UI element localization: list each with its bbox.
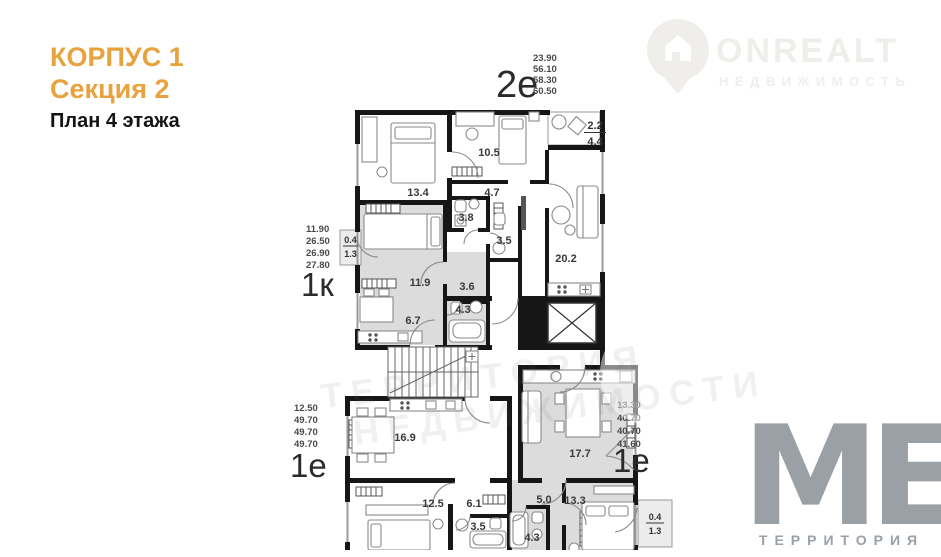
svg-text:1.3: 1.3: [344, 249, 357, 259]
room-label-6-1: 6.1: [466, 498, 481, 510]
bed-icon: [391, 123, 435, 183]
kitchen-counter: [390, 399, 462, 411]
bed-icon: [582, 502, 634, 550]
room-label-16-9: 16.9: [394, 432, 415, 444]
room-label-13-4: 13.4: [407, 187, 429, 199]
room-label-3-8: 3.8: [458, 212, 473, 224]
cabinet-icon: [466, 351, 478, 362]
stool-icon: [377, 167, 387, 177]
floorplan-page: { "title_block": { "building": "КОРПУС 1…: [0, 0, 941, 550]
toilet-icon: [490, 518, 501, 529]
svg-text:41.60: 41.60: [617, 439, 641, 450]
toilet-icon: [455, 200, 466, 212]
svg-text:13.30: 13.30: [617, 400, 641, 411]
coffee-table-icon: [552, 206, 570, 224]
svg-text:60.50: 60.50: [533, 86, 557, 97]
room-label-12-5: 12.5: [422, 498, 443, 510]
svg-text:56.10: 56.10: [533, 64, 557, 75]
sink-icon: [470, 301, 482, 313]
room-label-20-2: 20.2: [555, 253, 576, 265]
room-label-11-9: 11.9: [410, 277, 431, 289]
svg-text:26.90: 26.90: [306, 248, 330, 259]
svg-text:40.70: 40.70: [617, 413, 641, 424]
room-label-6-7: 6.7: [405, 315, 420, 327]
sink-icon: [398, 333, 408, 341]
kitchen-counter: [548, 283, 600, 296]
sink-icon: [426, 401, 436, 409]
svg-text:4.4: 4.4: [587, 136, 603, 148]
nightstand-icon: [529, 112, 539, 121]
room-label-4-3a: 4.3: [455, 304, 470, 316]
room-label-5-0: 5.0: [536, 494, 551, 506]
bathtub-icon: [449, 320, 485, 342]
svg-text:49.70: 49.70: [294, 415, 318, 426]
svg-text:11.90: 11.90: [306, 224, 329, 235]
tv-icon: [521, 196, 526, 230]
dining-table-icon: [352, 408, 394, 462]
staircase: [388, 347, 478, 397]
wardrobe-icon: [366, 505, 428, 515]
svg-text:1к: 1к: [301, 266, 334, 303]
svg-text:49.70: 49.70: [294, 427, 318, 438]
room-label-3-5b: 3.5: [470, 521, 485, 533]
kitchen-counter: [523, 370, 635, 383]
wardrobe-icon: [362, 117, 377, 162]
room-label-10-5: 10.5: [478, 147, 499, 159]
svg-text:2е: 2е: [496, 64, 538, 106]
svg-text:12.50: 12.50: [294, 403, 318, 414]
room-label-4-3b: 4.3: [524, 532, 539, 544]
sofa-icon: [522, 391, 541, 443]
toilet-icon: [494, 213, 505, 225]
room-label-4-7: 4.7: [484, 187, 499, 199]
sofa-icon: [577, 186, 598, 238]
apartment-label-1e-left: 1е 12.50 49.70 49.70 49.70: [290, 403, 327, 484]
svg-text:1е: 1е: [290, 447, 327, 484]
svg-text:23.90: 23.90: [533, 53, 557, 64]
bed-icon: [364, 214, 442, 249]
room-label-13-3: 13.3: [564, 495, 585, 507]
elevator-shaft: [518, 296, 605, 350]
stool-icon: [433, 519, 443, 529]
bed-icon: [368, 520, 430, 550]
svg-text:40.70: 40.70: [617, 426, 641, 437]
svg-text:49.70: 49.70: [294, 439, 318, 450]
svg-text:26.50: 26.50: [306, 236, 330, 247]
me-logo-text: МЕ.: [742, 408, 941, 546]
room-label-3-6: 3.6: [459, 281, 474, 293]
apartment-label-1k: 1к 11.90 26.50 26.90 27.80: [301, 224, 334, 303]
bathtub-icon: [470, 531, 506, 548]
svg-text:0.4: 0.4: [344, 235, 357, 245]
toilet-icon: [532, 512, 543, 523]
wardrobe-icon: [594, 486, 634, 494]
svg-text:1.3: 1.3: [649, 526, 662, 536]
stool-icon: [569, 543, 579, 550]
me-brand: МЕ. ТЕРРИТОРИЯ: [742, 408, 941, 548]
coffee-table-icon: [565, 225, 575, 235]
sink-icon: [469, 199, 479, 209]
table-icon: [552, 115, 566, 129]
room-label-17-7: 17.7: [569, 448, 590, 460]
me-logo-subtitle: ТЕРРИТОРИЯ: [742, 532, 941, 548]
svg-text:2.2: 2.2: [587, 120, 602, 132]
apartment-label-2e: 2е 23.90 56.10 58.30 60.50: [496, 53, 557, 106]
sink-icon: [551, 372, 561, 382]
room-label-3-5a: 3.5: [496, 235, 511, 247]
kitchen-counter: [358, 331, 422, 343]
svg-text:27.80: 27.80: [306, 260, 330, 271]
desk-icon: [456, 112, 494, 140]
svg-text:58.30: 58.30: [533, 75, 557, 86]
bed-icon: [499, 116, 526, 164]
svg-text:0.4: 0.4: [649, 512, 662, 522]
